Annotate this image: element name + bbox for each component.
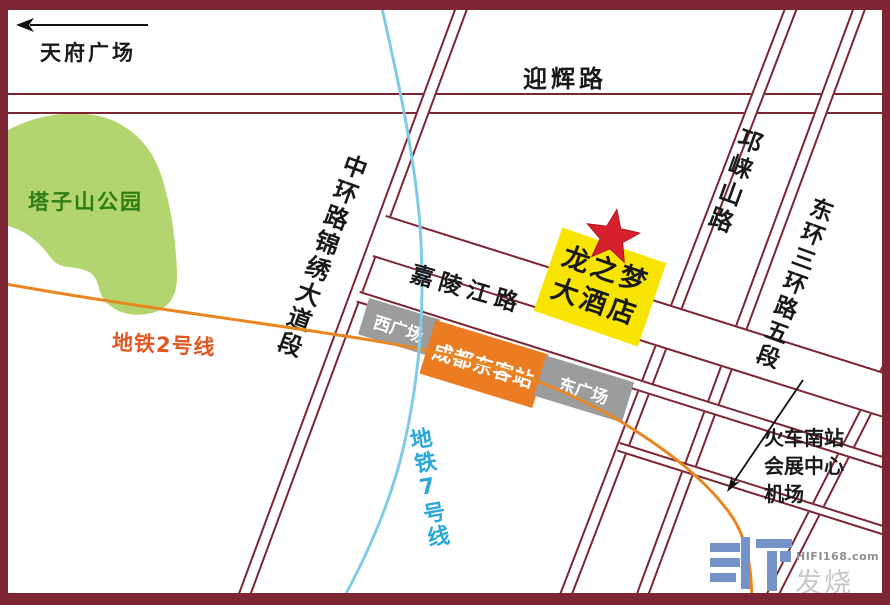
yinghui-road-label: 迎辉路 <box>523 59 607 94</box>
tianfu-square-label: 天府广场 <box>40 37 136 67</box>
watermark-logo-bar <box>741 537 750 589</box>
map-frame-bottom <box>0 593 890 605</box>
watermark-logo-bar <box>710 543 740 552</box>
dest-convention-center: 会展中心 <box>764 452 844 480</box>
tianfu-arrow-head-icon <box>16 18 34 32</box>
qionglaishan-road-label: 邛崃山路 <box>698 122 769 239</box>
south-destinations-label: 火车南站 会展中心 机场 <box>764 424 844 508</box>
metro-line-7-label: 地铁7号线 <box>401 425 454 552</box>
tourist-map: 西广场 成都东客站 东广场 龙之梦 大酒店 天府广场 迎辉路 塔子山公园 嘉陵江… <box>0 0 890 605</box>
map-frame-left <box>0 0 8 605</box>
dest-south-station: 火车南站 <box>764 424 844 452</box>
map-frame-right <box>882 0 890 605</box>
watermark-logo-bar <box>756 539 792 548</box>
watermark-logo-bar <box>710 558 740 567</box>
tazishan-park-label: 塔子山公园 <box>28 186 143 216</box>
east-square-label: 东广场 <box>556 370 612 409</box>
metro-line-2-label: 地铁2号线 <box>111 326 216 361</box>
watermark-logo-bar <box>767 551 777 591</box>
map-frame-top <box>0 0 890 10</box>
dest-airport: 机场 <box>764 480 844 508</box>
watermark-logo-bar <box>710 573 736 582</box>
west-square-label: 西广场 <box>371 308 427 347</box>
watermark-logo-bar <box>780 551 791 562</box>
watermark: HIFI168.com 发烧网 <box>710 535 880 595</box>
